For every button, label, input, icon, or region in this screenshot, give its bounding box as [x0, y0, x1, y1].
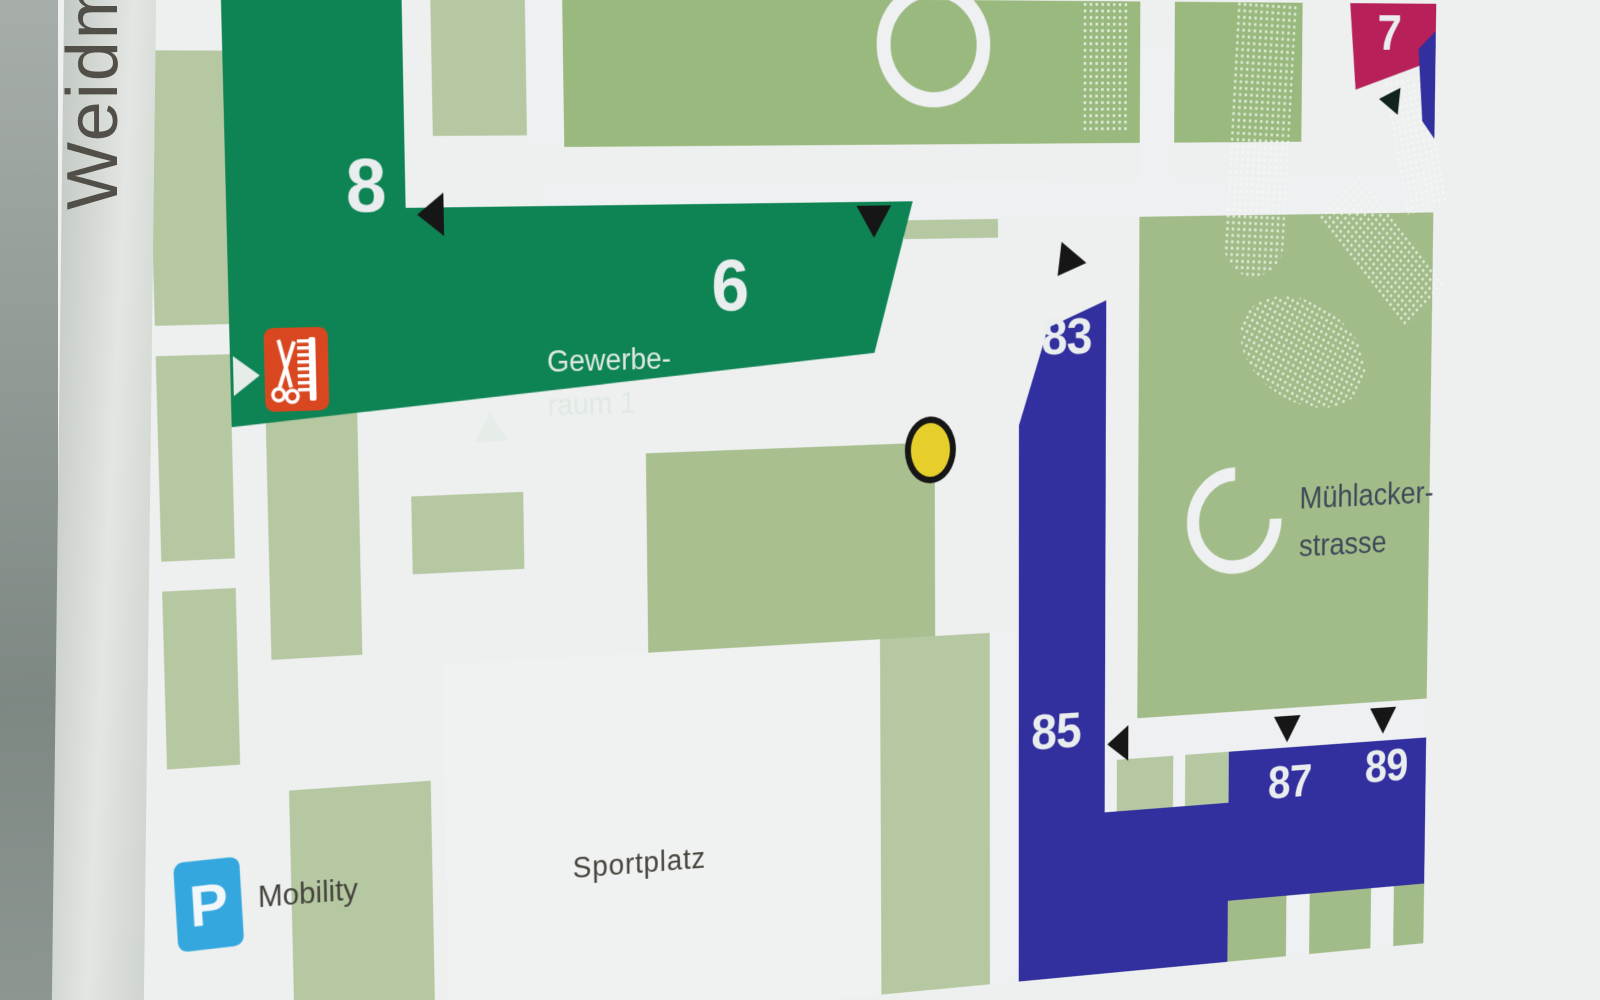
lawn-top-center [562, 0, 1140, 147]
building-number-83: 83 [1042, 310, 1092, 363]
building-number-89: 89 [1365, 742, 1408, 790]
lawn-patch [162, 588, 240, 770]
lawn-patch [904, 219, 998, 239]
footpath [1173, 755, 1185, 807]
street-line: strasse [1299, 515, 1469, 571]
lawn-patch [430, 0, 527, 136]
parking-icon: P [173, 856, 244, 953]
lawn-patch [156, 354, 235, 562]
label-line: raum 1 [547, 381, 671, 428]
building-number-7: 7 [1377, 7, 1401, 58]
lawn-patch [411, 492, 524, 575]
lawn-patch [1185, 752, 1229, 806]
entrance-arrow-left-85 [1107, 725, 1128, 762]
tree-ring-open-icon [1174, 447, 1294, 596]
entrance-arrow-up-white [474, 412, 508, 442]
lawn-patch [880, 633, 990, 995]
sign-edge-vertical-label: Weidm [52, 100, 162, 210]
building-number-6: 6 [711, 249, 748, 323]
entrance-arrow-down-87 [1274, 715, 1301, 743]
wayfinding-sign-photo: 8 6 83 85 87 89 7 Gewerbe- raum 1 Mühlac… [0, 0, 1600, 1000]
footpath [1105, 760, 1117, 813]
sportplatz-field [443, 639, 882, 1000]
scissors-comb-icon [263, 327, 329, 412]
entrance-arrow-down-89 [1370, 707, 1396, 735]
lawn-patch [1117, 756, 1173, 812]
building-number-8: 8 [345, 148, 386, 224]
building-label-gewerberaum: Gewerbe- raum 1 [547, 338, 672, 428]
map-board: 8 6 83 85 87 89 7 Gewerbe- raum 1 Mühlac… [104, 0, 1437, 1000]
building-number-87: 87 [1268, 758, 1312, 807]
location-marker-dot [905, 416, 956, 485]
footpath [990, 631, 1019, 984]
label-line: Gewerbe- [547, 338, 672, 385]
footpath-vertical [1140, 45, 1175, 180]
footpath [1286, 894, 1310, 957]
street-name-muehlackerstrasse: Mühlacker- strasse [1299, 468, 1470, 572]
entrance-arrow-down-6 [856, 205, 891, 238]
lawn-patch [646, 442, 935, 671]
entrance-arrow-83 [1045, 242, 1086, 287]
street-line: Mühlacker- [1299, 468, 1469, 524]
building-number-85: 85 [1031, 704, 1081, 758]
gravel-stipple-band [1082, 1, 1128, 132]
footpath-vertical [525, 0, 564, 145]
sign-edge-side [0, 0, 58, 1000]
entrance-arrow-right-white [233, 355, 260, 396]
entrance-arrow-left-8 [417, 193, 444, 237]
footpath [1370, 886, 1394, 948]
